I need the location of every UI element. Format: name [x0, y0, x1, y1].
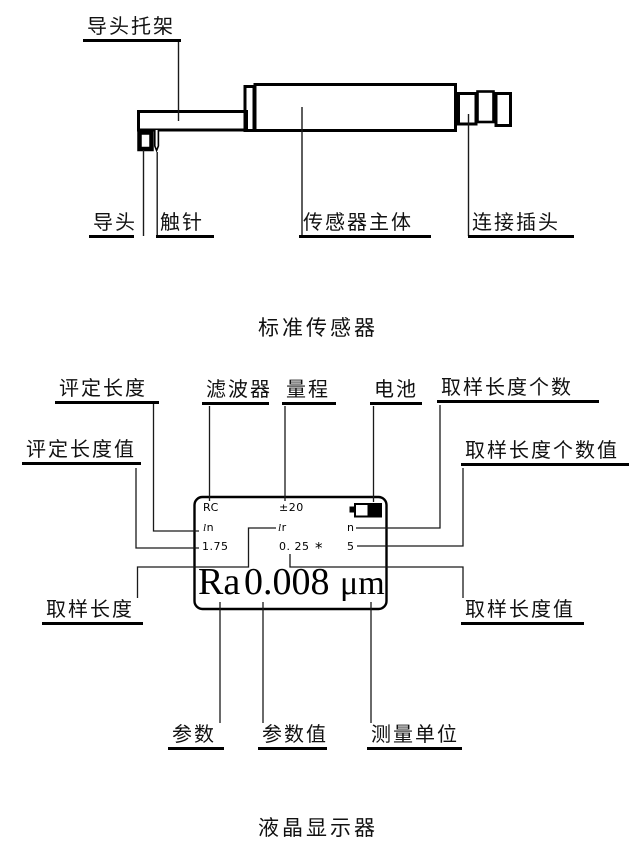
- lcd-range-value: ±20: [279, 502, 304, 514]
- bracket-label: 导头托架: [83, 16, 181, 42]
- plug-segment-2: [478, 92, 494, 123]
- lcd-sampling-length-value: 0. 25: [279, 541, 310, 553]
- figure-line-art: [0, 0, 636, 847]
- lcd-sampling-count-value: 5: [347, 541, 355, 553]
- parameter-value-label: 参数值: [258, 724, 327, 750]
- lcd-parameter-value: 0.008: [244, 563, 330, 601]
- battery-icon: [350, 504, 382, 517]
- lcd-parameter: Ra: [198, 563, 240, 601]
- plug-segment-1: [459, 94, 477, 125]
- filter-label: 滤波器: [202, 379, 269, 405]
- battery-terminal: [350, 507, 355, 513]
- lcd-sampling-length-symbol: lr: [278, 522, 287, 534]
- sampling-count-label: 取样长度个数: [437, 377, 599, 403]
- lcd-unit: μm: [340, 567, 385, 601]
- sensor-body-label: 传感器主体: [299, 212, 431, 238]
- measurement-unit-label: 测量单位: [367, 724, 462, 750]
- sensor-leader-lines: [144, 42, 469, 236]
- battery-charge-fill: [368, 505, 381, 516]
- range-label: 量程: [282, 379, 336, 405]
- sampling-count-value-label: 取样长度个数值: [461, 440, 629, 466]
- sensor-collar-shape: [245, 87, 254, 131]
- stylus-shape: [155, 130, 159, 151]
- lcd-filter-value: RC: [203, 502, 219, 514]
- plug-segment-3: [496, 94, 511, 126]
- bracket-bar-shape: [139, 112, 247, 131]
- evaluation-length-value-label: 评定长度值: [22, 439, 141, 465]
- lcd-evaluation-length-value: 1.75: [202, 541, 229, 553]
- lcd-sampling-count-symbol: n: [347, 522, 354, 534]
- manual-diagram-page: 导头托架 导头 触针 传感器主体 连接插头 标准传感器 评定长度 滤波器 量程 …: [0, 0, 636, 847]
- lcd-evaluation-length-symbol: ln: [203, 522, 214, 534]
- sampling-length-value-label: 取样长度值: [461, 599, 584, 625]
- evaluation-length-label: 评定长度: [55, 378, 159, 404]
- guide-head-shape: [140, 133, 152, 150]
- sampling-length-label: 取样长度: [42, 599, 143, 625]
- battery-label: 电池: [370, 379, 422, 405]
- plug-label: 连接插头: [468, 212, 574, 238]
- leader-evaluation-length-value: [136, 468, 199, 548]
- sensor-body-shape: [255, 85, 456, 131]
- stylus-label: 触针: [156, 212, 214, 238]
- lcd-multiply-symbol: *: [315, 542, 323, 554]
- parameter-label: 参数: [168, 724, 224, 750]
- sensor-figure-caption: 标准传感器: [0, 312, 636, 342]
- leader-evaluation-length: [154, 403, 200, 531]
- guide-head-label: 导头: [89, 212, 134, 238]
- lcd-figure-caption: 液晶显示器: [0, 812, 636, 842]
- sensor-figure: [139, 85, 511, 151]
